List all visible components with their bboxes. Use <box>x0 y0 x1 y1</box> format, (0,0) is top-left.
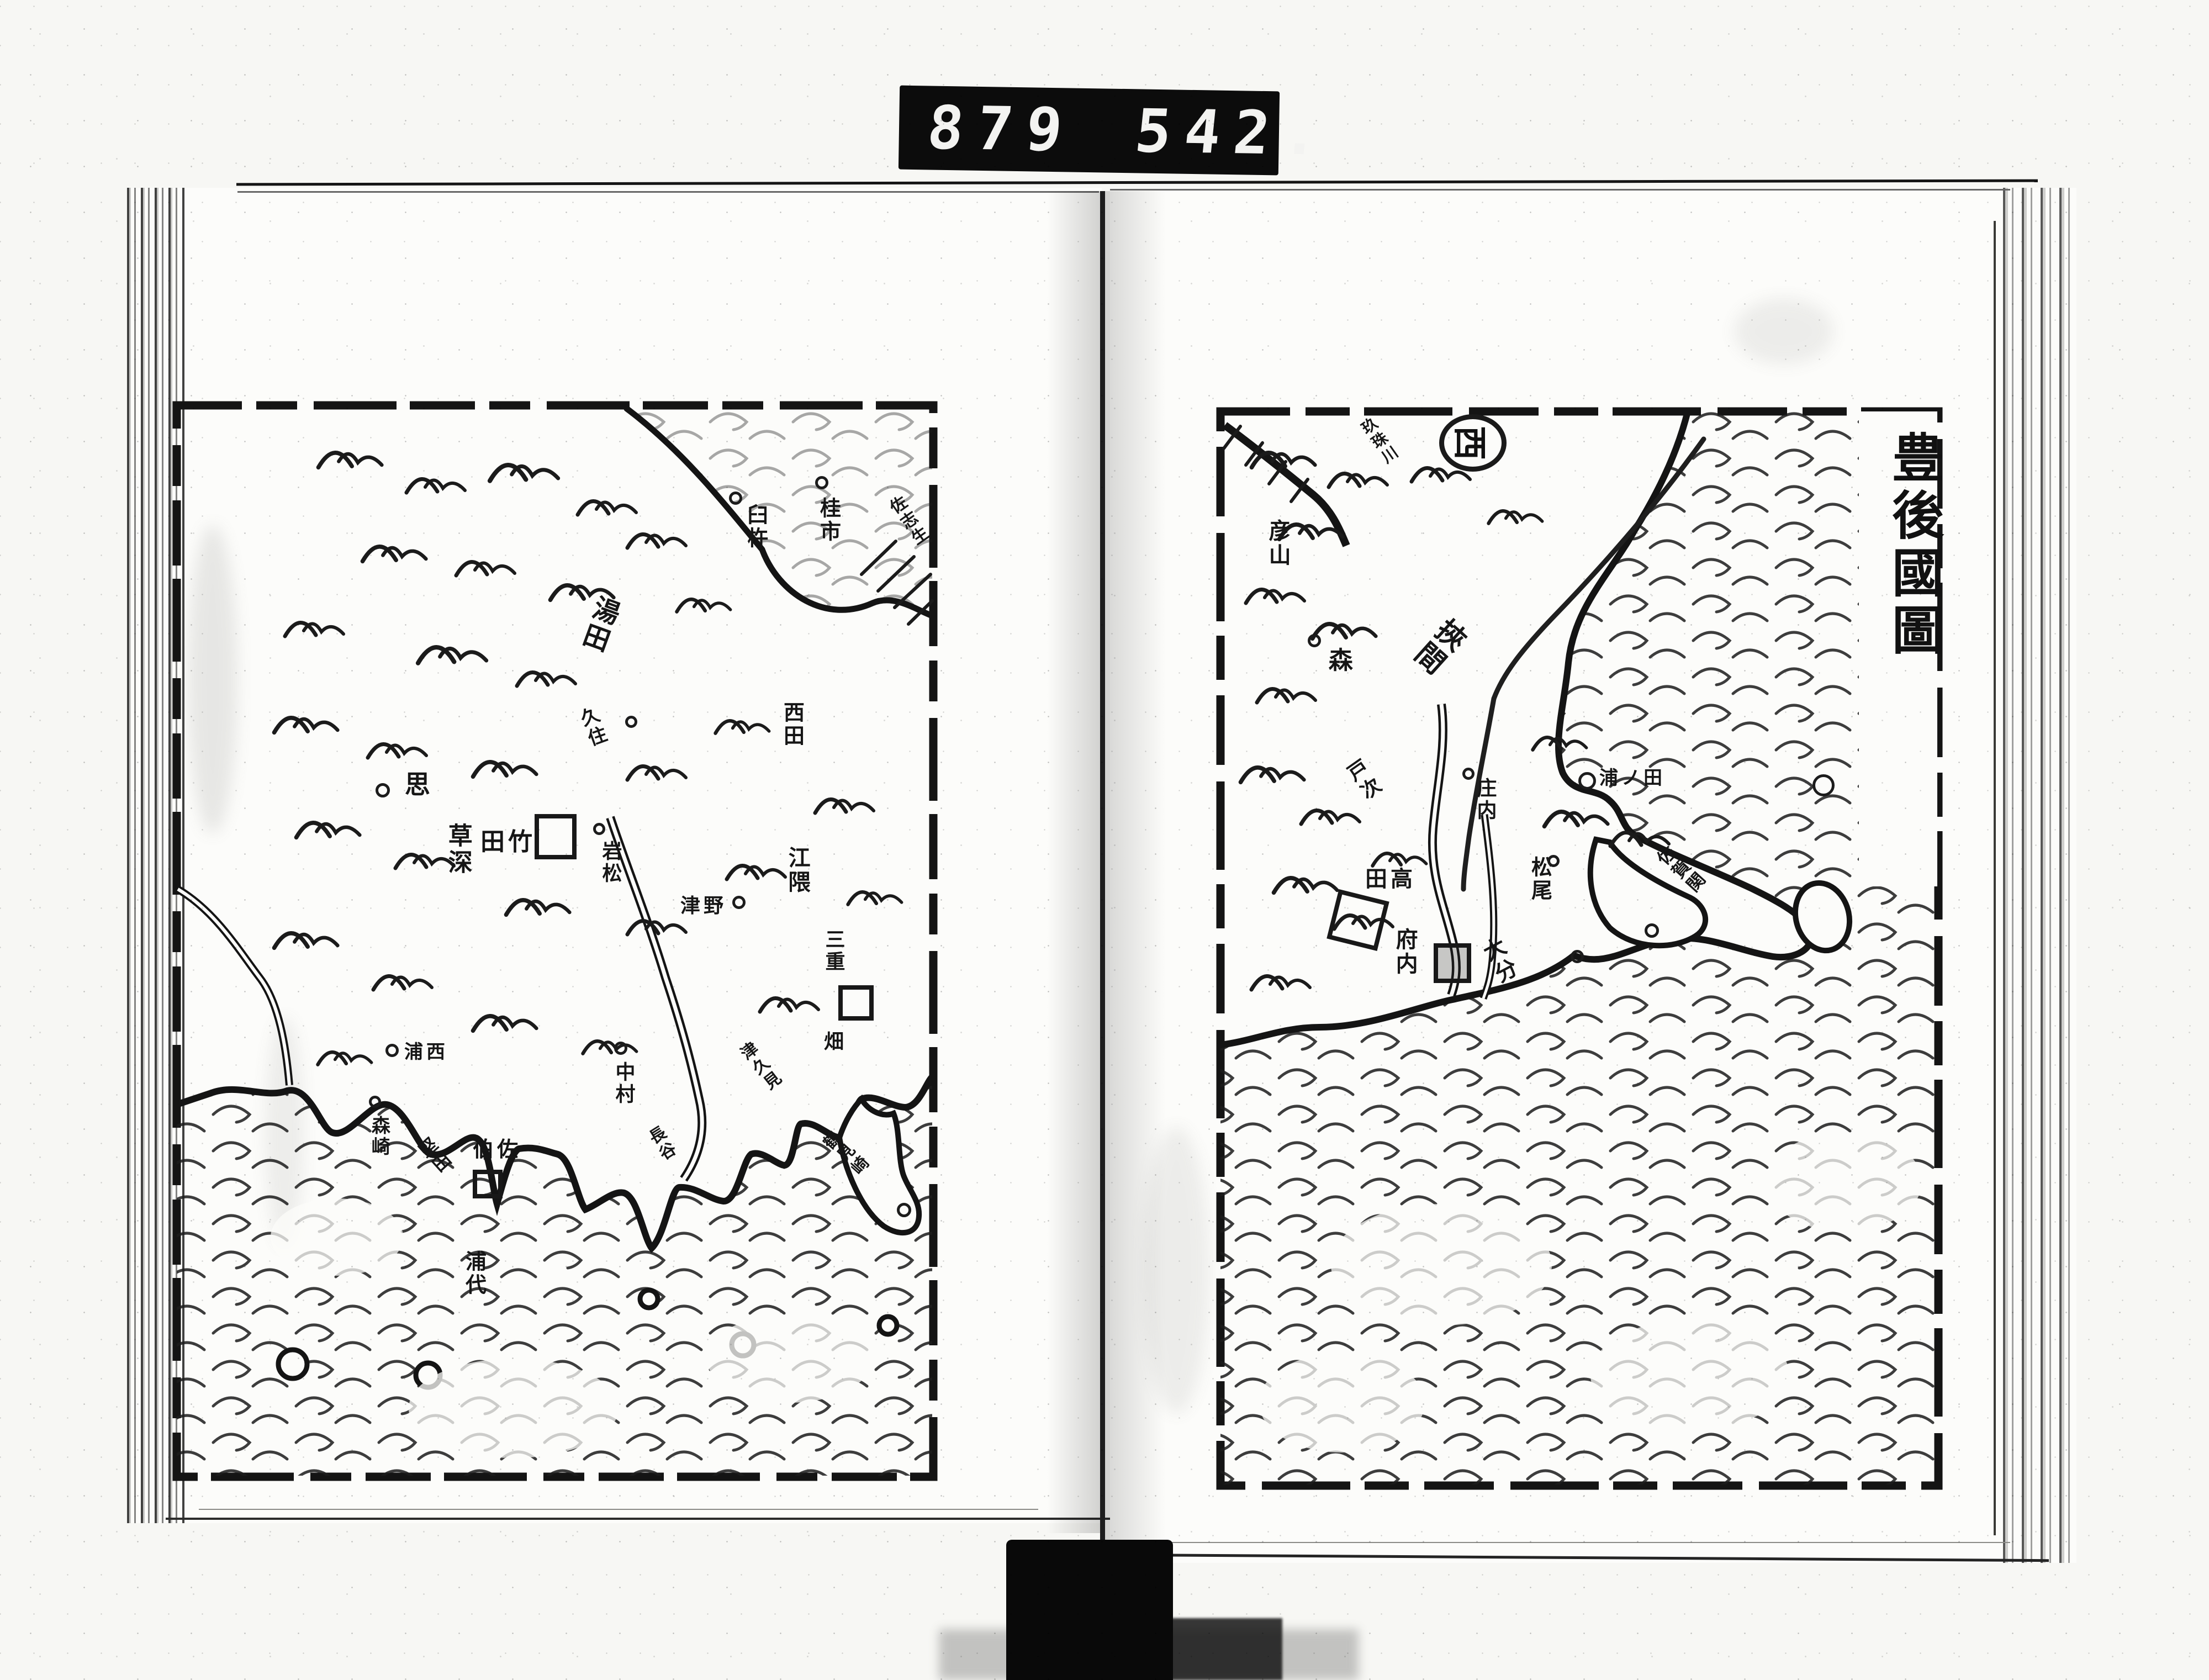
label-tanoura: 田ノ浦 <box>1599 769 1662 788</box>
label-funai: 府内 <box>1393 928 1416 976</box>
label-katsuichi: 桂市 <box>817 497 839 543</box>
label-ekuma: 江隈 <box>785 846 808 895</box>
label-matsuo: 松尾 <box>1529 856 1551 902</box>
village-circle-marker <box>369 1096 381 1108</box>
label-urashiro: 浦代 <box>463 1250 485 1297</box>
village-circle-marker <box>729 492 742 505</box>
label-usuki: 臼杵 <box>744 504 767 550</box>
label-kusabuka: 草深 <box>445 823 471 876</box>
village-circle-marker <box>1547 855 1560 867</box>
fold-shadow-left <box>1047 191 1101 1533</box>
village-circle-marker <box>815 476 828 489</box>
label-hata: 畑 <box>824 1032 844 1052</box>
village-circle-marker <box>1571 950 1584 963</box>
label-takada: 高田 <box>1365 868 1413 891</box>
label-morisaki: 森崎 <box>369 1116 388 1158</box>
village-circle-marker <box>732 896 746 909</box>
village-circle-marker <box>1812 774 1835 796</box>
counter-right-digits: 542. <box>1132 97 1336 168</box>
label-shonai: 庄内 <box>1475 778 1495 822</box>
right-page: 西 豊後國圖 彦山玖珠川森挾間戸次庄内田ノ浦高田府内大分松尾佐賀関 <box>1110 188 2076 1563</box>
village-circle-marker <box>376 783 390 797</box>
bottom-black-gap <box>1006 1540 1173 1680</box>
castle-square-marker <box>1434 943 1471 983</box>
book-top-edge-line <box>236 179 2038 186</box>
label-nishiura: 西浦 <box>404 1043 445 1062</box>
counter-left-digits: 879 <box>924 94 1079 165</box>
label-iwamatsu: 岩松 <box>600 841 620 885</box>
label-omo: 思 <box>402 771 429 799</box>
village-circle-marker <box>385 1044 399 1057</box>
compass-west-circle: 西 <box>1439 414 1507 472</box>
village-circle-marker <box>897 1203 911 1217</box>
label-saiki: 佐伯 <box>473 1139 518 1161</box>
village-circle-marker <box>1308 634 1321 647</box>
fold-shadow-right <box>1105 191 1166 1555</box>
label-taketa: 竹田 <box>480 830 532 855</box>
center-fold-line <box>1100 191 1105 1543</box>
village-circle-marker <box>593 823 605 835</box>
castle-square-marker <box>838 985 874 1021</box>
right-map-drawing <box>1110 188 2076 1563</box>
label-mie: 三重 <box>823 929 843 973</box>
map-title: 豊後國圖 <box>1875 431 1951 661</box>
village-circle-marker <box>625 716 637 728</box>
village-circle-marker <box>1645 923 1659 938</box>
label-nakamura: 中村 <box>613 1061 633 1106</box>
compass-west-character: 西 <box>1448 426 1498 460</box>
village-circle-marker <box>1578 772 1596 790</box>
village-circle-marker <box>614 1042 627 1055</box>
left-page: 臼杵桂市佐志生湯田久住西田思草深竹田岩松野津江隈三重西浦森崎堅田佐伯中村津久見畑… <box>127 188 1102 1523</box>
label-hikosan: 彦山 <box>1266 519 1289 568</box>
frame-counter-panel: 879 542. <box>899 86 1280 176</box>
label-mori: 森 <box>1325 647 1351 674</box>
label-nishida: 西田 <box>781 701 803 748</box>
castle-square-marker <box>535 814 577 859</box>
scanned-book-spread: 879 542. <box>0 0 2209 1680</box>
village-circle-marker <box>1462 768 1475 780</box>
label-notsu: 野津 <box>680 896 723 916</box>
castle-square-marker <box>473 1170 503 1198</box>
